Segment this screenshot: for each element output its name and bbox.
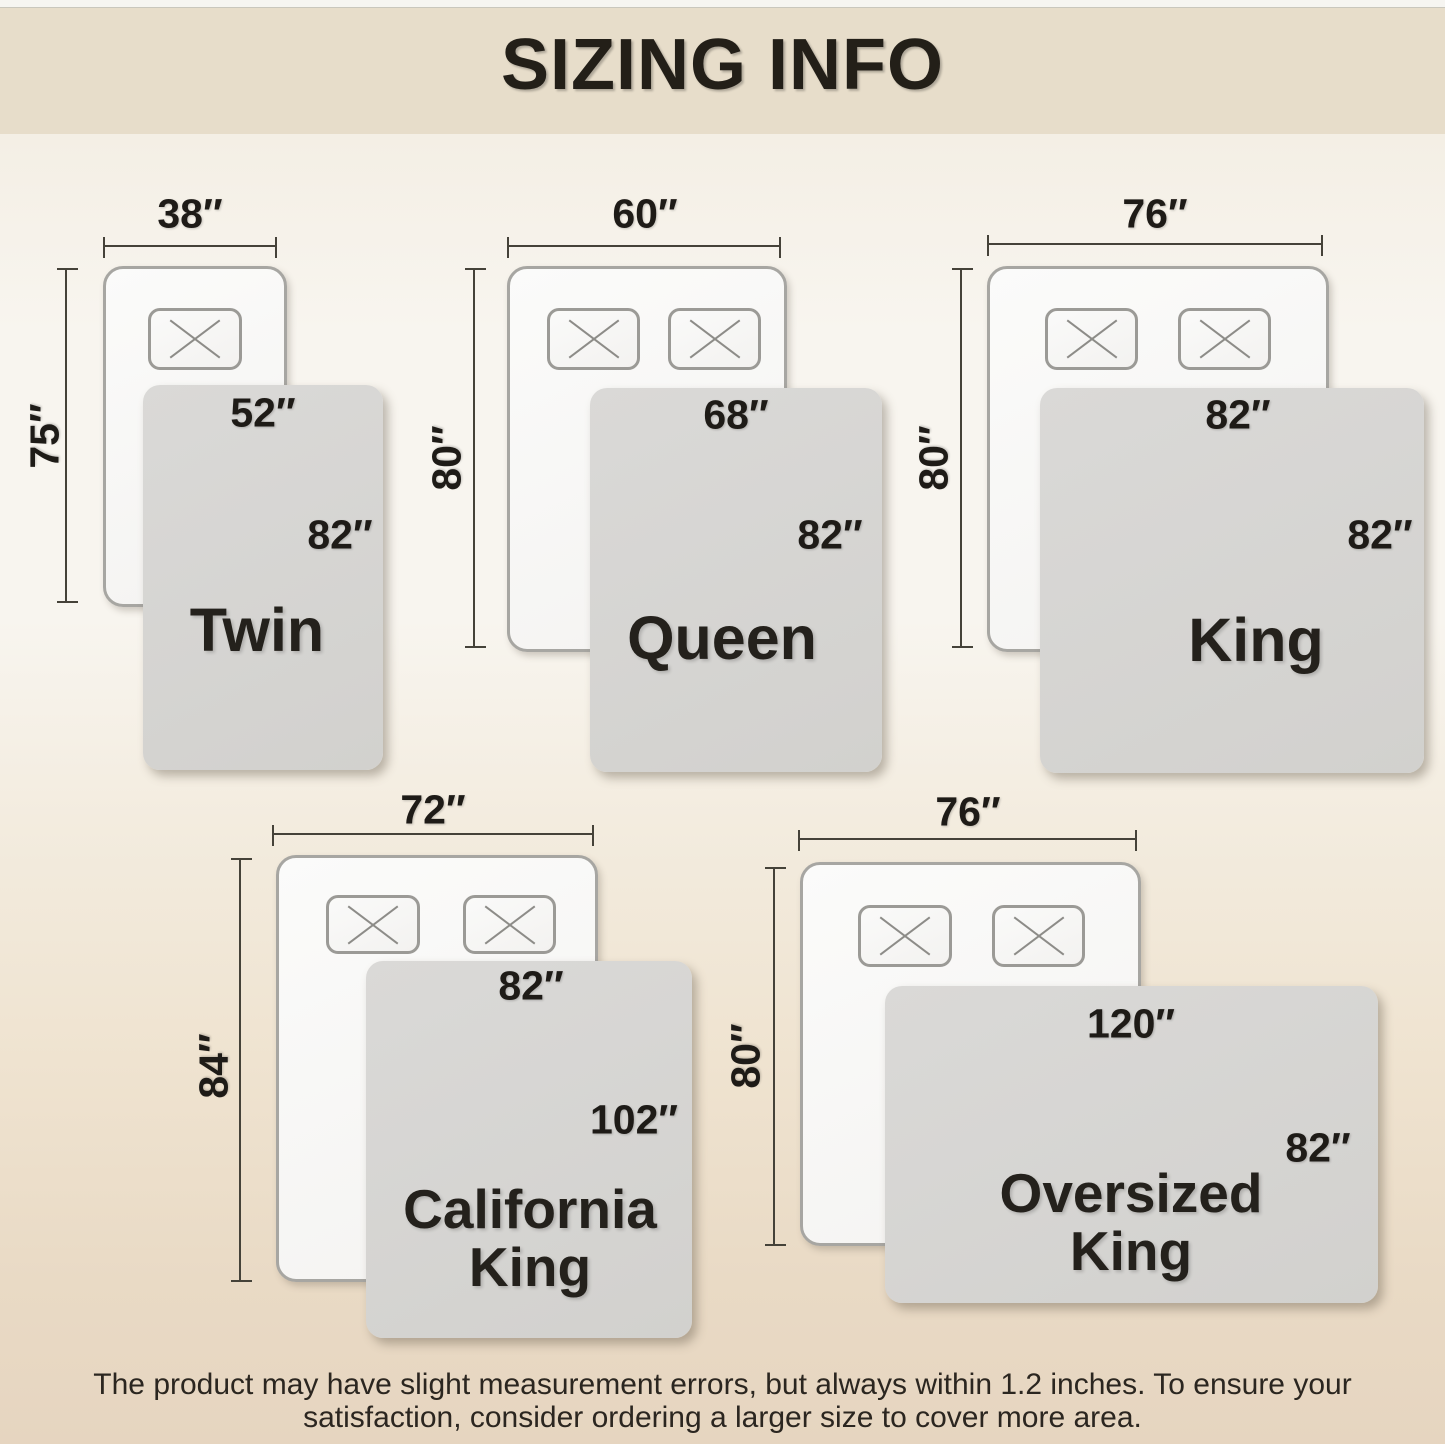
blanket-width-label: 82″ bbox=[498, 963, 563, 1010]
blanket bbox=[1040, 388, 1424, 773]
mattress bbox=[987, 266, 1329, 652]
blanket bbox=[885, 986, 1378, 1303]
blanket-length-label: 82″ bbox=[1285, 1125, 1350, 1172]
pillow bbox=[1045, 308, 1138, 370]
mattress-length-dimension-line bbox=[239, 858, 241, 1282]
mattress bbox=[276, 855, 598, 1282]
pillow-cross-icon bbox=[1066, 319, 1118, 359]
blanket-width-label: 82″ bbox=[1205, 392, 1270, 439]
pillow bbox=[1178, 308, 1271, 370]
mattress-width-dimension-line bbox=[272, 833, 594, 835]
blanket-length-label: 102″ bbox=[590, 1097, 678, 1144]
blanket-length-label: 82″ bbox=[1347, 512, 1412, 559]
page-title: SIZING INFO bbox=[0, 24, 1445, 106]
bed-diagram-twin: 38″ 75″ 52″ 82″ Twin bbox=[0, 0, 1445, 1444]
top-edge-strip bbox=[0, 0, 1445, 8]
mattress-width-dimension-line bbox=[987, 243, 1323, 245]
pillow bbox=[463, 895, 556, 954]
mattress bbox=[103, 266, 287, 607]
sizing-info-infographic: SIZING INFO 38″ 75″ 52″ 82″ Twin 60″ 80″… bbox=[0, 0, 1445, 1444]
mattress-length-dimension-line bbox=[473, 268, 475, 648]
mattress-width-dimension-line bbox=[507, 245, 781, 247]
mattress bbox=[800, 862, 1141, 1246]
mattress-width-dimension-line bbox=[798, 838, 1137, 840]
bed-size-name-line: California bbox=[403, 1180, 657, 1238]
pillow bbox=[668, 308, 761, 370]
mattress-length-dimension-line bbox=[773, 867, 775, 1246]
mattress-length-label: 75″ bbox=[22, 403, 69, 468]
bed-diagram-california-king: 72″ 84″ 82″ 102″ California King bbox=[0, 0, 1445, 1444]
pillow-cross-icon bbox=[347, 905, 399, 945]
blanket-width-label: 68″ bbox=[703, 392, 768, 439]
bed-size-name-line: Twin bbox=[190, 598, 324, 662]
bed-diagram-queen: 60″ 80″ 68″ 82″ Queen bbox=[0, 0, 1445, 1444]
pillow-cross-icon bbox=[484, 905, 536, 945]
pillow-cross-icon bbox=[689, 319, 741, 359]
mattress-width-label: 76″ bbox=[935, 789, 1000, 836]
mattress-width-label: 76″ bbox=[1122, 191, 1187, 238]
bed-size-name-line: King bbox=[1000, 1222, 1263, 1280]
pillow-cross-icon bbox=[568, 319, 620, 359]
bed-size-name-line: Oversized bbox=[1000, 1164, 1263, 1222]
mattress-width-label: 38″ bbox=[157, 191, 222, 238]
pillow bbox=[858, 905, 952, 967]
pillow-cross-icon bbox=[879, 916, 931, 956]
bed-size-name-line: Queen bbox=[627, 606, 817, 670]
bed-size-name: Twin bbox=[190, 598, 324, 662]
bed-size-name-line: King bbox=[1188, 608, 1324, 672]
pillow-cross-icon bbox=[1013, 916, 1065, 956]
bed-size-name: Oversized King bbox=[1000, 1164, 1263, 1280]
pillow-cross-icon bbox=[169, 319, 221, 359]
bed-size-name-line: King bbox=[403, 1238, 657, 1296]
footer-note-line-2: satisfaction, consider ordering a larger… bbox=[0, 1401, 1445, 1435]
bed-size-name: Queen bbox=[627, 606, 817, 670]
blanket-width-label: 120″ bbox=[1087, 1001, 1175, 1048]
mattress-length-dimension-line bbox=[65, 268, 67, 603]
mattress-width-dimension-line bbox=[103, 245, 277, 247]
blanket bbox=[143, 385, 383, 770]
blanket-length-label: 82″ bbox=[307, 512, 372, 559]
bed-diagram-king: 76″ 80″ 82″ 82″ King bbox=[0, 0, 1445, 1444]
pillow bbox=[547, 308, 640, 370]
mattress bbox=[507, 266, 787, 652]
blanket bbox=[366, 961, 692, 1338]
mattress-length-label: 84″ bbox=[191, 1033, 238, 1098]
mattress-width-label: 60″ bbox=[612, 191, 677, 238]
blanket-width-label: 52″ bbox=[230, 390, 295, 437]
blanket-length-label: 82″ bbox=[797, 512, 862, 559]
blanket bbox=[590, 388, 882, 772]
footer-note-line-1: The product may have slight measurement … bbox=[0, 1368, 1445, 1402]
mattress-length-label: 80″ bbox=[723, 1023, 770, 1088]
mattress-length-label: 80″ bbox=[424, 425, 471, 490]
pillow bbox=[326, 895, 420, 954]
mattress-width-label: 72″ bbox=[400, 787, 465, 834]
bed-size-name: California King bbox=[403, 1180, 657, 1296]
mattress-length-label: 80″ bbox=[911, 425, 958, 490]
bed-size-name: King bbox=[1188, 608, 1324, 672]
pillow bbox=[992, 905, 1085, 967]
pillow bbox=[148, 308, 242, 370]
mattress-length-dimension-line bbox=[960, 268, 962, 648]
pillow-cross-icon bbox=[1199, 319, 1251, 359]
bed-diagram-oversized-king: 76″ 80″ 120″ 82″ Oversized King bbox=[0, 0, 1445, 1444]
